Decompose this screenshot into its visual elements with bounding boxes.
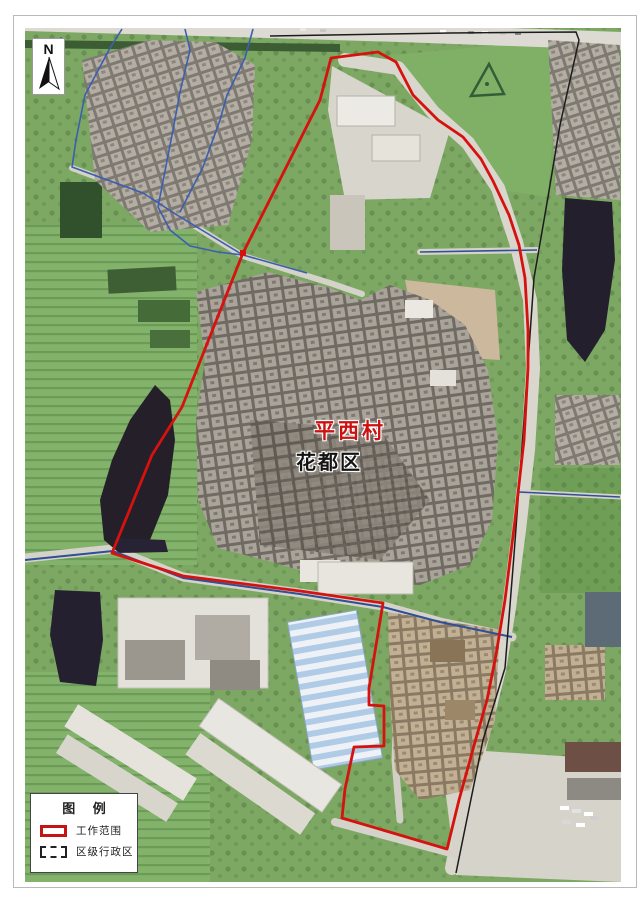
north-label: N — [43, 42, 53, 56]
district-label: 花都区 — [296, 446, 362, 475]
page: { "map": { "village_label": "平西村", "dist… — [0, 0, 640, 904]
legend-title: 图 例 — [38, 798, 137, 817]
work-scope-swatch-icon — [40, 825, 67, 837]
north-indicator: N — [32, 38, 65, 95]
admin-district-swatch-icon — [40, 846, 67, 858]
legend-item-label: 区级行政区 — [76, 844, 134, 859]
legend: 图 例 工作范围 区级行政区 — [30, 793, 138, 873]
legend-item-admin-district: 区级行政区 — [40, 844, 137, 859]
legend-item-label: 工作范围 — [76, 823, 122, 838]
village-label: 平西村 — [314, 415, 386, 445]
boundary-node — [240, 250, 246, 256]
north-arrow-icon — [37, 56, 61, 92]
legend-item-work-scope: 工作范围 — [40, 823, 137, 838]
